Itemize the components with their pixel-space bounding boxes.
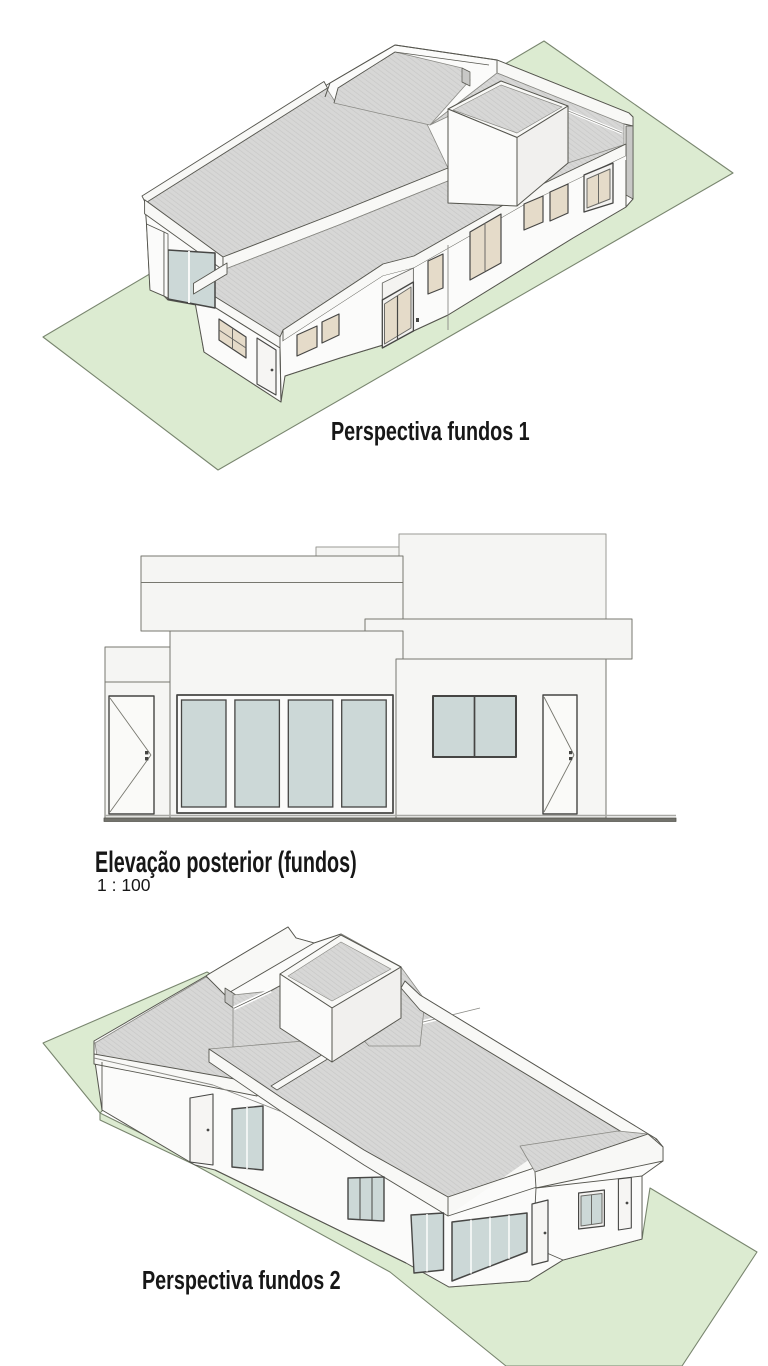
svg-text:Perspectiva fundos 2: Perspectiva fundos 2 [142, 1265, 341, 1294]
svg-text:Perspectiva fundos 1: Perspectiva fundos 1 [331, 416, 530, 445]
svg-text:1 : 100: 1 : 100 [97, 875, 151, 895]
